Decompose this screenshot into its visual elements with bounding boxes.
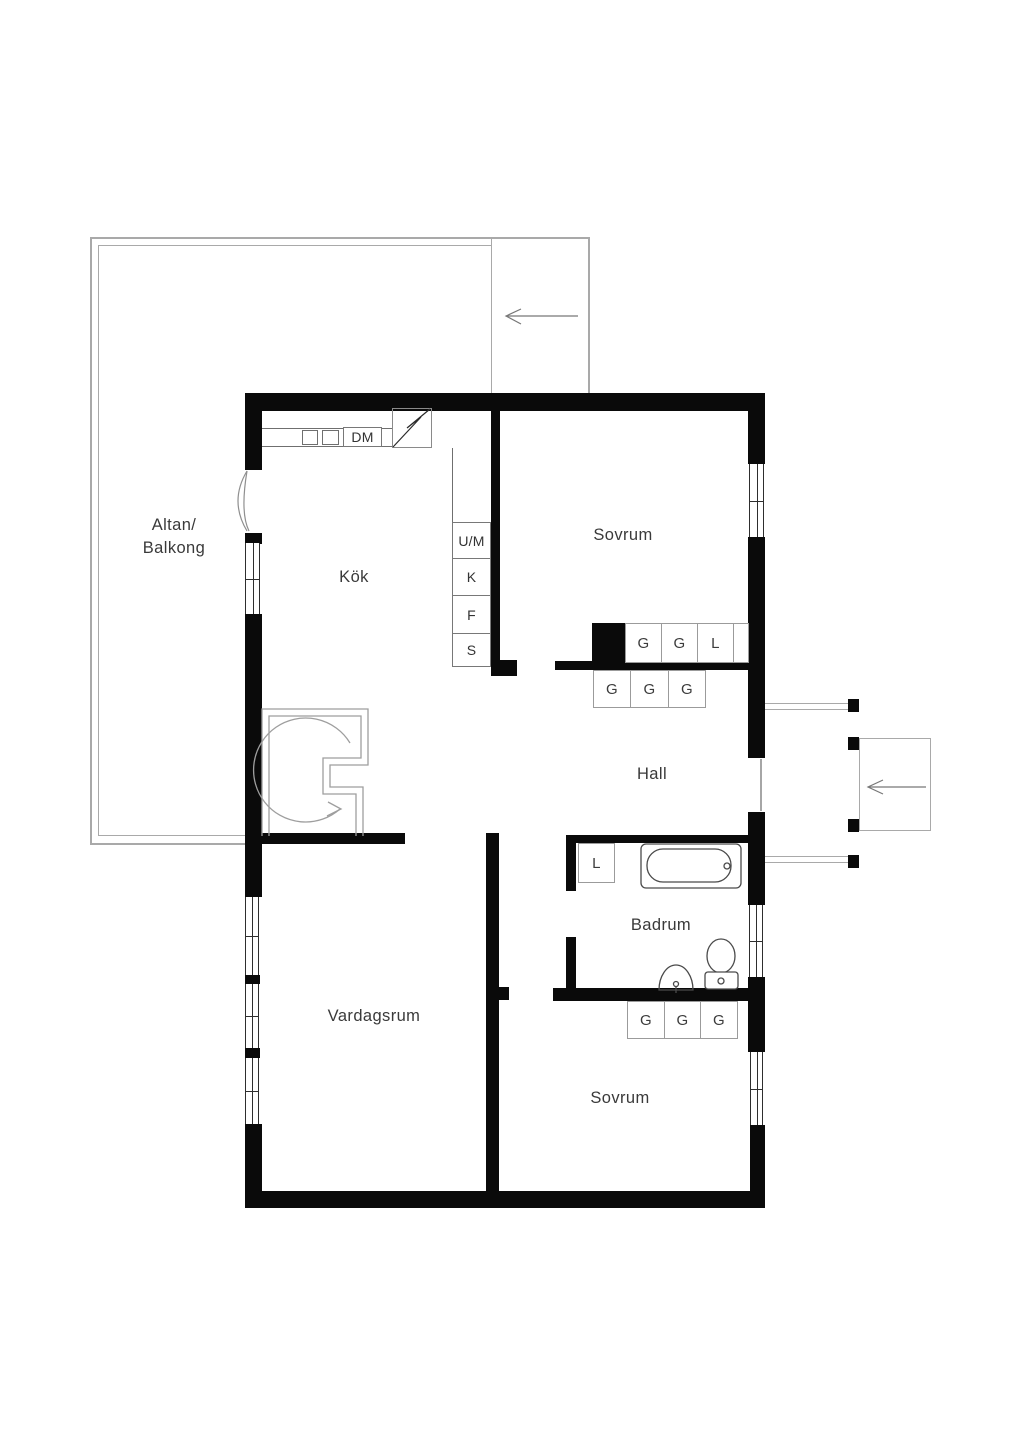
- bathroom-south-wall: [553, 988, 750, 1001]
- kitchen-sink-bowl: [302, 430, 318, 445]
- porch-landing: [859, 738, 931, 831]
- appliance-freezer: F: [452, 595, 491, 634]
- wardrobe-label: G: [713, 1012, 725, 1029]
- window-mullion: [246, 1091, 258, 1092]
- appliance-label: S: [467, 642, 477, 658]
- window-mullion: [246, 936, 258, 937]
- terrace-inner-line-left: [98, 245, 99, 836]
- terrace-inner-line-top: [98, 245, 492, 246]
- exterior-wall-bottom: [245, 1191, 765, 1208]
- appliance-label: K: [467, 569, 477, 585]
- terrace-divider-line: [491, 237, 492, 394]
- living-bedroom-divider-wall: [486, 833, 499, 1192]
- terrace-arrow-icon: [506, 309, 578, 324]
- appliance-washer: U/M: [452, 522, 491, 559]
- wardrobe-box: G: [593, 670, 631, 708]
- living-room-window: [245, 897, 259, 975]
- window-pier: [245, 975, 260, 984]
- porch-rail-bottom: [765, 856, 850, 863]
- window-mullion: [246, 579, 259, 580]
- bathroom-north-wall: [566, 835, 750, 843]
- window-mullion: [751, 1089, 762, 1090]
- closet-label: L: [592, 855, 601, 872]
- exterior-wall-left: [245, 1124, 262, 1207]
- toilet-icon: [705, 939, 738, 989]
- terrace-label-line1: Altan/: [104, 514, 244, 537]
- exterior-wall-right: [748, 393, 765, 464]
- appliance-fridge: K: [452, 558, 491, 596]
- exterior-wall-right: [748, 812, 765, 905]
- wardrobe-box: G: [661, 623, 698, 663]
- living-room-north-wall: [262, 833, 405, 844]
- bedroom-bottom-door-jamb: [499, 987, 509, 1000]
- terrace-walkway-right-edge: [588, 237, 590, 394]
- porch-post: [848, 855, 859, 868]
- exterior-wall-right: [748, 537, 765, 758]
- wardrobe-label: G: [677, 1012, 689, 1029]
- window-mullion: [750, 941, 762, 942]
- staircase-icon: [254, 709, 368, 836]
- dishwasher-box: DM: [343, 427, 382, 447]
- kitchen-bedroom-wall-cap: [491, 660, 517, 676]
- wardrobe-label: G: [681, 681, 693, 698]
- appliance-label: U/M: [458, 533, 484, 549]
- porch-post: [848, 819, 859, 832]
- wardrobe-box: G: [700, 1001, 738, 1039]
- terrace-outline-top: [90, 237, 590, 239]
- wardrobe-label: G: [640, 1012, 652, 1029]
- terrace-label-line2: Balkong: [104, 537, 244, 560]
- exterior-wall-right: [750, 1125, 765, 1192]
- bedroom-top-window: [749, 464, 764, 537]
- kitchen-window: [245, 543, 260, 614]
- wardrobe-label: G: [638, 635, 650, 652]
- room-label-living-room: Vardagsrum: [314, 1005, 434, 1028]
- appliance-label: F: [467, 607, 476, 623]
- room-label-bedroom-top: Sovrum: [563, 524, 683, 547]
- terrace-outline-left: [90, 237, 92, 845]
- wardrobe-label: G: [644, 681, 656, 698]
- room-label-hall: Hall: [602, 763, 702, 786]
- room-label-bathroom: Badrum: [611, 914, 711, 937]
- dishwasher-label: DM: [351, 429, 373, 445]
- terrace-outline-bottom: [90, 843, 246, 845]
- wardrobe-box: G: [630, 670, 669, 708]
- exterior-wall-top: [245, 393, 765, 411]
- kitchen-sink-bowl: [322, 430, 339, 445]
- terrace-inner-line-bottom: [98, 835, 246, 836]
- wardrobe-box: G: [625, 623, 662, 663]
- porch-post: [848, 699, 859, 712]
- bathtub-icon: [641, 844, 741, 888]
- stove-box: [392, 408, 432, 448]
- bathroom-closet: L: [578, 843, 615, 883]
- bedroom-bottom-window: [750, 1052, 763, 1125]
- fixtures-overlay: [0, 0, 1024, 1448]
- appliance-pantry: S: [452, 633, 491, 667]
- wardrobe-box: L: [697, 623, 734, 663]
- bedroom-top-wardrobe-block: [592, 623, 625, 663]
- wardrobe-label: G: [606, 681, 618, 698]
- window-pier: [245, 1048, 260, 1058]
- living-room-window: [245, 1058, 259, 1124]
- bathroom-window: [749, 905, 763, 977]
- bathroom-west-wall: [566, 937, 576, 994]
- wardrobe-box: G: [627, 1001, 665, 1039]
- exterior-wall-right: [748, 977, 765, 1052]
- wardrobe-label: G: [674, 635, 686, 652]
- counter-side-edge: [452, 448, 490, 522]
- porch-rail-top: [765, 703, 850, 710]
- living-room-window: [245, 984, 259, 1048]
- porch-post: [848, 737, 859, 750]
- kitchen-bedroom-wall: [491, 411, 500, 663]
- window-mullion: [750, 501, 763, 502]
- room-label-kitchen: Kök: [314, 566, 394, 589]
- wardrobe-label: L: [711, 635, 720, 652]
- window-mullion: [246, 1016, 258, 1017]
- wardrobe-box: G: [664, 1001, 701, 1039]
- room-label-terrace: Altan/ Balkong: [104, 514, 244, 560]
- room-label-bedroom-bottom: Sovrum: [560, 1087, 680, 1110]
- bathroom-west-wall: [566, 835, 576, 891]
- wardrobe-box: G: [668, 670, 706, 708]
- floor-plan: DM U/M K F S G G L G G G L G G: [0, 0, 1024, 1448]
- wardrobe-box-partial: [733, 623, 749, 663]
- exterior-wall-left: [245, 393, 262, 470]
- exterior-wall-left: [245, 614, 262, 897]
